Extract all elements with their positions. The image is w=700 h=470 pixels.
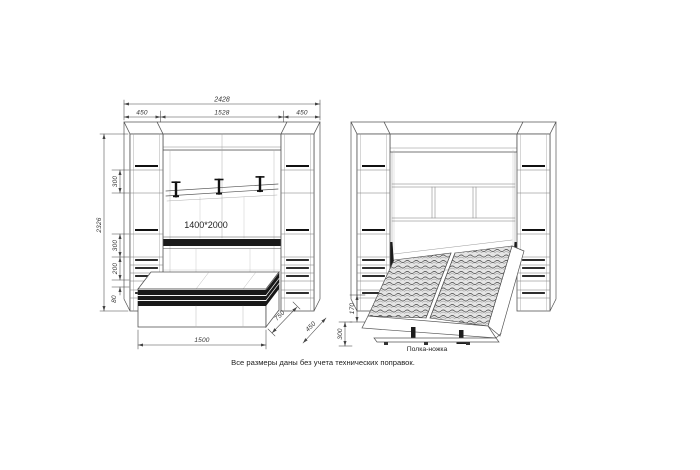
open-view-drawing: Полка-ножка 170 300 <box>337 122 556 353</box>
left-cabinet-top-face <box>351 122 390 134</box>
closed-view-drawing: 1400*2000 <box>96 97 326 350</box>
dim-label-bench-length: 1500 <box>194 337 209 344</box>
dim-label-drawer-block: 200 <box>112 263 119 276</box>
right-cabinet-front <box>517 134 550 311</box>
shelf-leg-label: Полка-ножка <box>407 346 448 353</box>
technical-drawing-page: 1400*2000 <box>0 0 700 470</box>
dim-label-plinth: 80 <box>111 295 118 303</box>
dim-label-frame-height: 170 <box>349 303 356 315</box>
dim-label-niche-mid: 300 <box>112 240 119 252</box>
wall-bed-drawing: 1400*2000 <box>0 0 700 470</box>
dim-label-cabinet-depth: 450 <box>304 320 317 333</box>
center-top-face <box>384 122 523 134</box>
top-bridge <box>390 134 517 152</box>
dim-label-floor-clearance: 300 <box>337 328 344 340</box>
left-cabinet-side-face <box>124 122 130 311</box>
dim-label-right-section: 450 <box>296 110 308 117</box>
storage-bench <box>138 272 279 327</box>
right-cabinet-side-face <box>550 122 556 311</box>
left-cabinet-side-face <box>351 122 357 311</box>
dim-section-widths: 450 1528 450 <box>124 110 320 123</box>
drawing-note: Все размеры даны без учета технических п… <box>231 358 415 367</box>
center-top-face <box>157 122 287 134</box>
right-cabinet-top-face <box>281 122 320 134</box>
dim-label-center-section: 1528 <box>214 110 229 117</box>
right-cabinet-side-face <box>314 122 320 311</box>
bed-size-label: 1400*2000 <box>184 220 228 230</box>
dim-label-left-section: 450 <box>136 110 148 117</box>
left-cabinet-top-face <box>124 122 163 134</box>
dim-label-niche-top: 300 <box>112 176 119 188</box>
dim-label-total-width: 2428 <box>213 97 230 104</box>
right-cabinet-front <box>281 134 314 311</box>
dim-label-total-height: 2326 <box>96 217 103 233</box>
dim-total-height: 2326 <box>96 134 128 311</box>
right-cabinet-top-face <box>517 122 556 134</box>
